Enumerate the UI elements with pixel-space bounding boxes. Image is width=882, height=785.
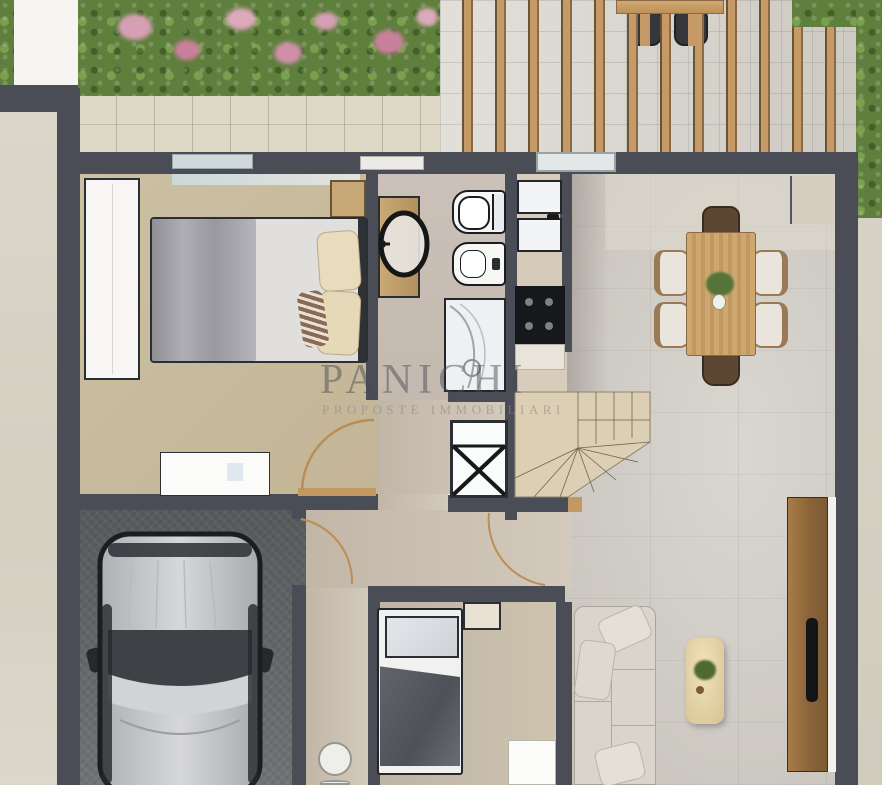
watermark-subtitle: PROPOSTE IMMOBILIARI <box>322 402 565 418</box>
door-swing-arc-living <box>489 513 545 585</box>
washing-machine-cross <box>453 446 505 495</box>
car <box>85 534 274 785</box>
door-swing-arc-garage <box>301 519 352 584</box>
door-swing-arc-bedroom <box>302 420 374 490</box>
watermark-title: PANICHI <box>320 356 528 404</box>
vanity-mirror <box>378 213 427 275</box>
floor-plan-image: PANICHI PROPOSTE IMMOBILIARI <box>0 0 882 785</box>
